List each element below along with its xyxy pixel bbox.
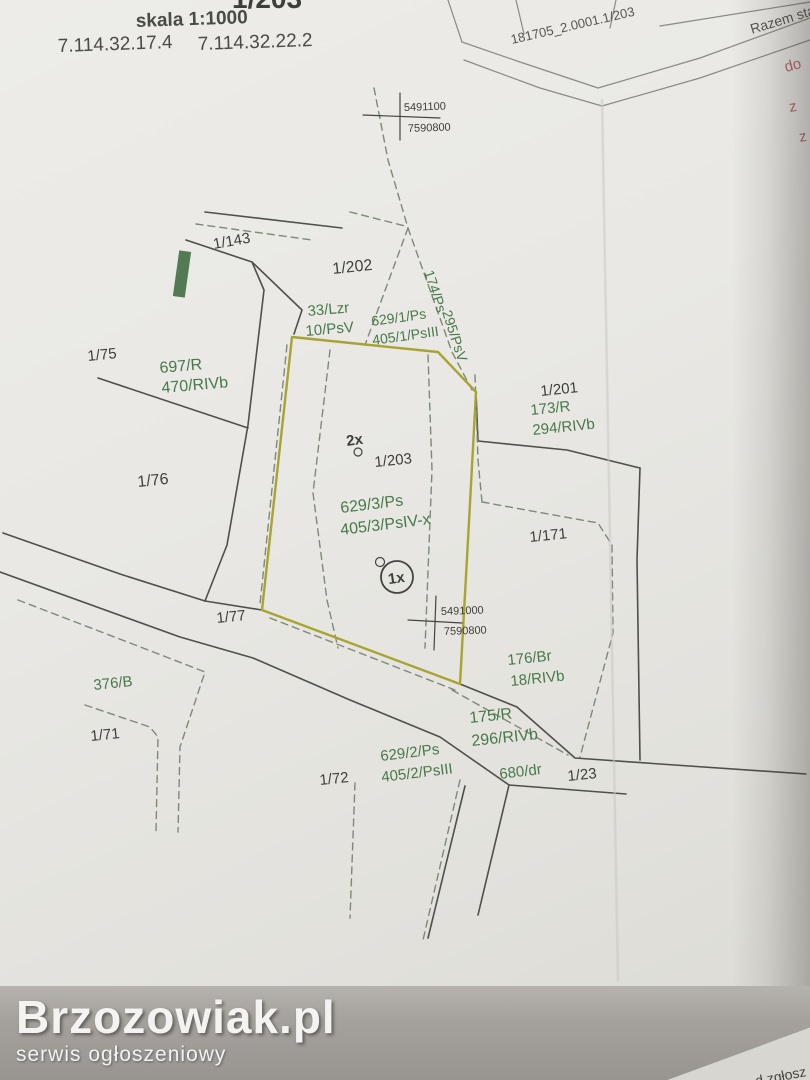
cadastral-map: 1/203skala 1:10007.114.32.17.47.114.32.2… [0,0,810,1080]
label-parcel-1-71: 1/71 [90,725,121,745]
boundary-line-3 [350,212,405,226]
point-dot-1x [376,558,385,567]
label-cross1-northing: 5491100 [404,101,446,114]
label-parcel-1-201: 1/201 [540,379,579,400]
label-class-405-2-psiii: 405/2/PsIII [380,760,453,786]
watermark: Brzozowiak.pl serwis ogłoszeniowy [16,994,336,1065]
boundary-line-14 [270,618,455,690]
label-class-174-ps: 174/Ps [421,268,450,314]
label-class-697-r: 697/R [159,356,203,377]
label-class-10-psv: 10/PsV [305,319,355,340]
label-ref-1: 7.114.32.17.4 [57,32,173,57]
table-background-band: d zgłosz Brzozowiak.pl serwis ogłoszenio… [0,986,810,1080]
boundary-line-12 [85,705,158,832]
boundary-line-11 [18,600,205,832]
label-cross1-easting: 7590800 [408,122,451,135]
boundary-line-8 [509,785,626,794]
label-parcel-1-203: 1/203 [374,450,413,471]
label-parcel-1-202: 1/202 [332,257,374,278]
paper-crease-0 [602,100,618,980]
label-cross2-easting: 7590800 [444,625,487,638]
label-class-295-psv: 295/PsV [439,308,471,364]
label-class-629-2-ps: 629/2/Ps [379,741,440,765]
boundary-line-9 [428,786,465,938]
label-class-294-rivb: 294/RIVb [532,416,596,439]
boundary-line-15 [260,345,287,604]
label-parcel-1-72: 1/72 [319,769,350,789]
label-red-note-1: do [783,55,804,76]
label-marker-2x: 2x [345,431,365,450]
label-class-33-lzr: 33/Lzr [307,299,350,320]
grid-cross-line-0 [363,115,440,118]
boundary-line-4 [3,533,205,601]
label-sheet-cell: 181705_2.0001.1/203 [509,4,636,47]
photo-of-cadastral-map: 1/203skala 1:10007.114.32.17.47.114.32.2… [0,0,810,1080]
label-class-175-r: 175/R [469,706,513,727]
boundary-line-8 [350,783,355,918]
boundary-line-12 [637,468,640,760]
label-class-173-r: 173/R [530,398,572,419]
green-highlight-mark [173,250,191,297]
fold-line-2 [464,40,810,106]
label-scale: skala 1:1000 [135,7,248,32]
label-ref-2: 7.114.32.22.2 [197,30,312,55]
label-parcel-1-75: 1/75 [87,345,118,365]
boundary-line-0 [205,212,342,228]
label-class-18-rivb: 18/RIVb [510,667,566,690]
boundary-line-7 [423,780,460,940]
grid-cross-line-3 [434,596,436,650]
boundary-line-10 [478,785,509,915]
label-cross2-northing: 5491000 [441,605,484,618]
label-class-680-dr: 680/dr [498,761,542,783]
label-class-376-b: 376/B [93,673,134,694]
label-marker-1x: 1x [387,569,407,588]
label-class-176-br: 176/Br [507,647,553,669]
fold-line-0 [448,0,462,42]
label-parcel-1-77: 1/77 [216,607,247,627]
label-parcel-1-143: 1/143 [212,230,252,253]
boundary-line-11 [478,441,640,468]
boundary-line-0 [374,88,408,228]
label-red-note-2: z [788,98,798,116]
boundary-line-5 [313,350,338,648]
label-red-note-3: z [798,128,808,146]
boundary-line-6 [425,355,432,648]
label-class-629-3-ps: 629/3/Ps [339,492,404,517]
label-parcel-1-76: 1/76 [137,471,170,491]
label-class-296-rivb: 296/RIVb [471,726,539,750]
watermark-subtitle: serwis ogłoszeniowy [16,1044,336,1065]
label-parcel-1-23: 1/23 [567,765,598,785]
label-parcel-1-171: 1/171 [529,525,568,546]
point-dot-2x [354,448,362,456]
label-class-470-rivb: 470/RIVb [161,374,229,397]
watermark-title: Brzozowiak.pl [16,994,336,1040]
